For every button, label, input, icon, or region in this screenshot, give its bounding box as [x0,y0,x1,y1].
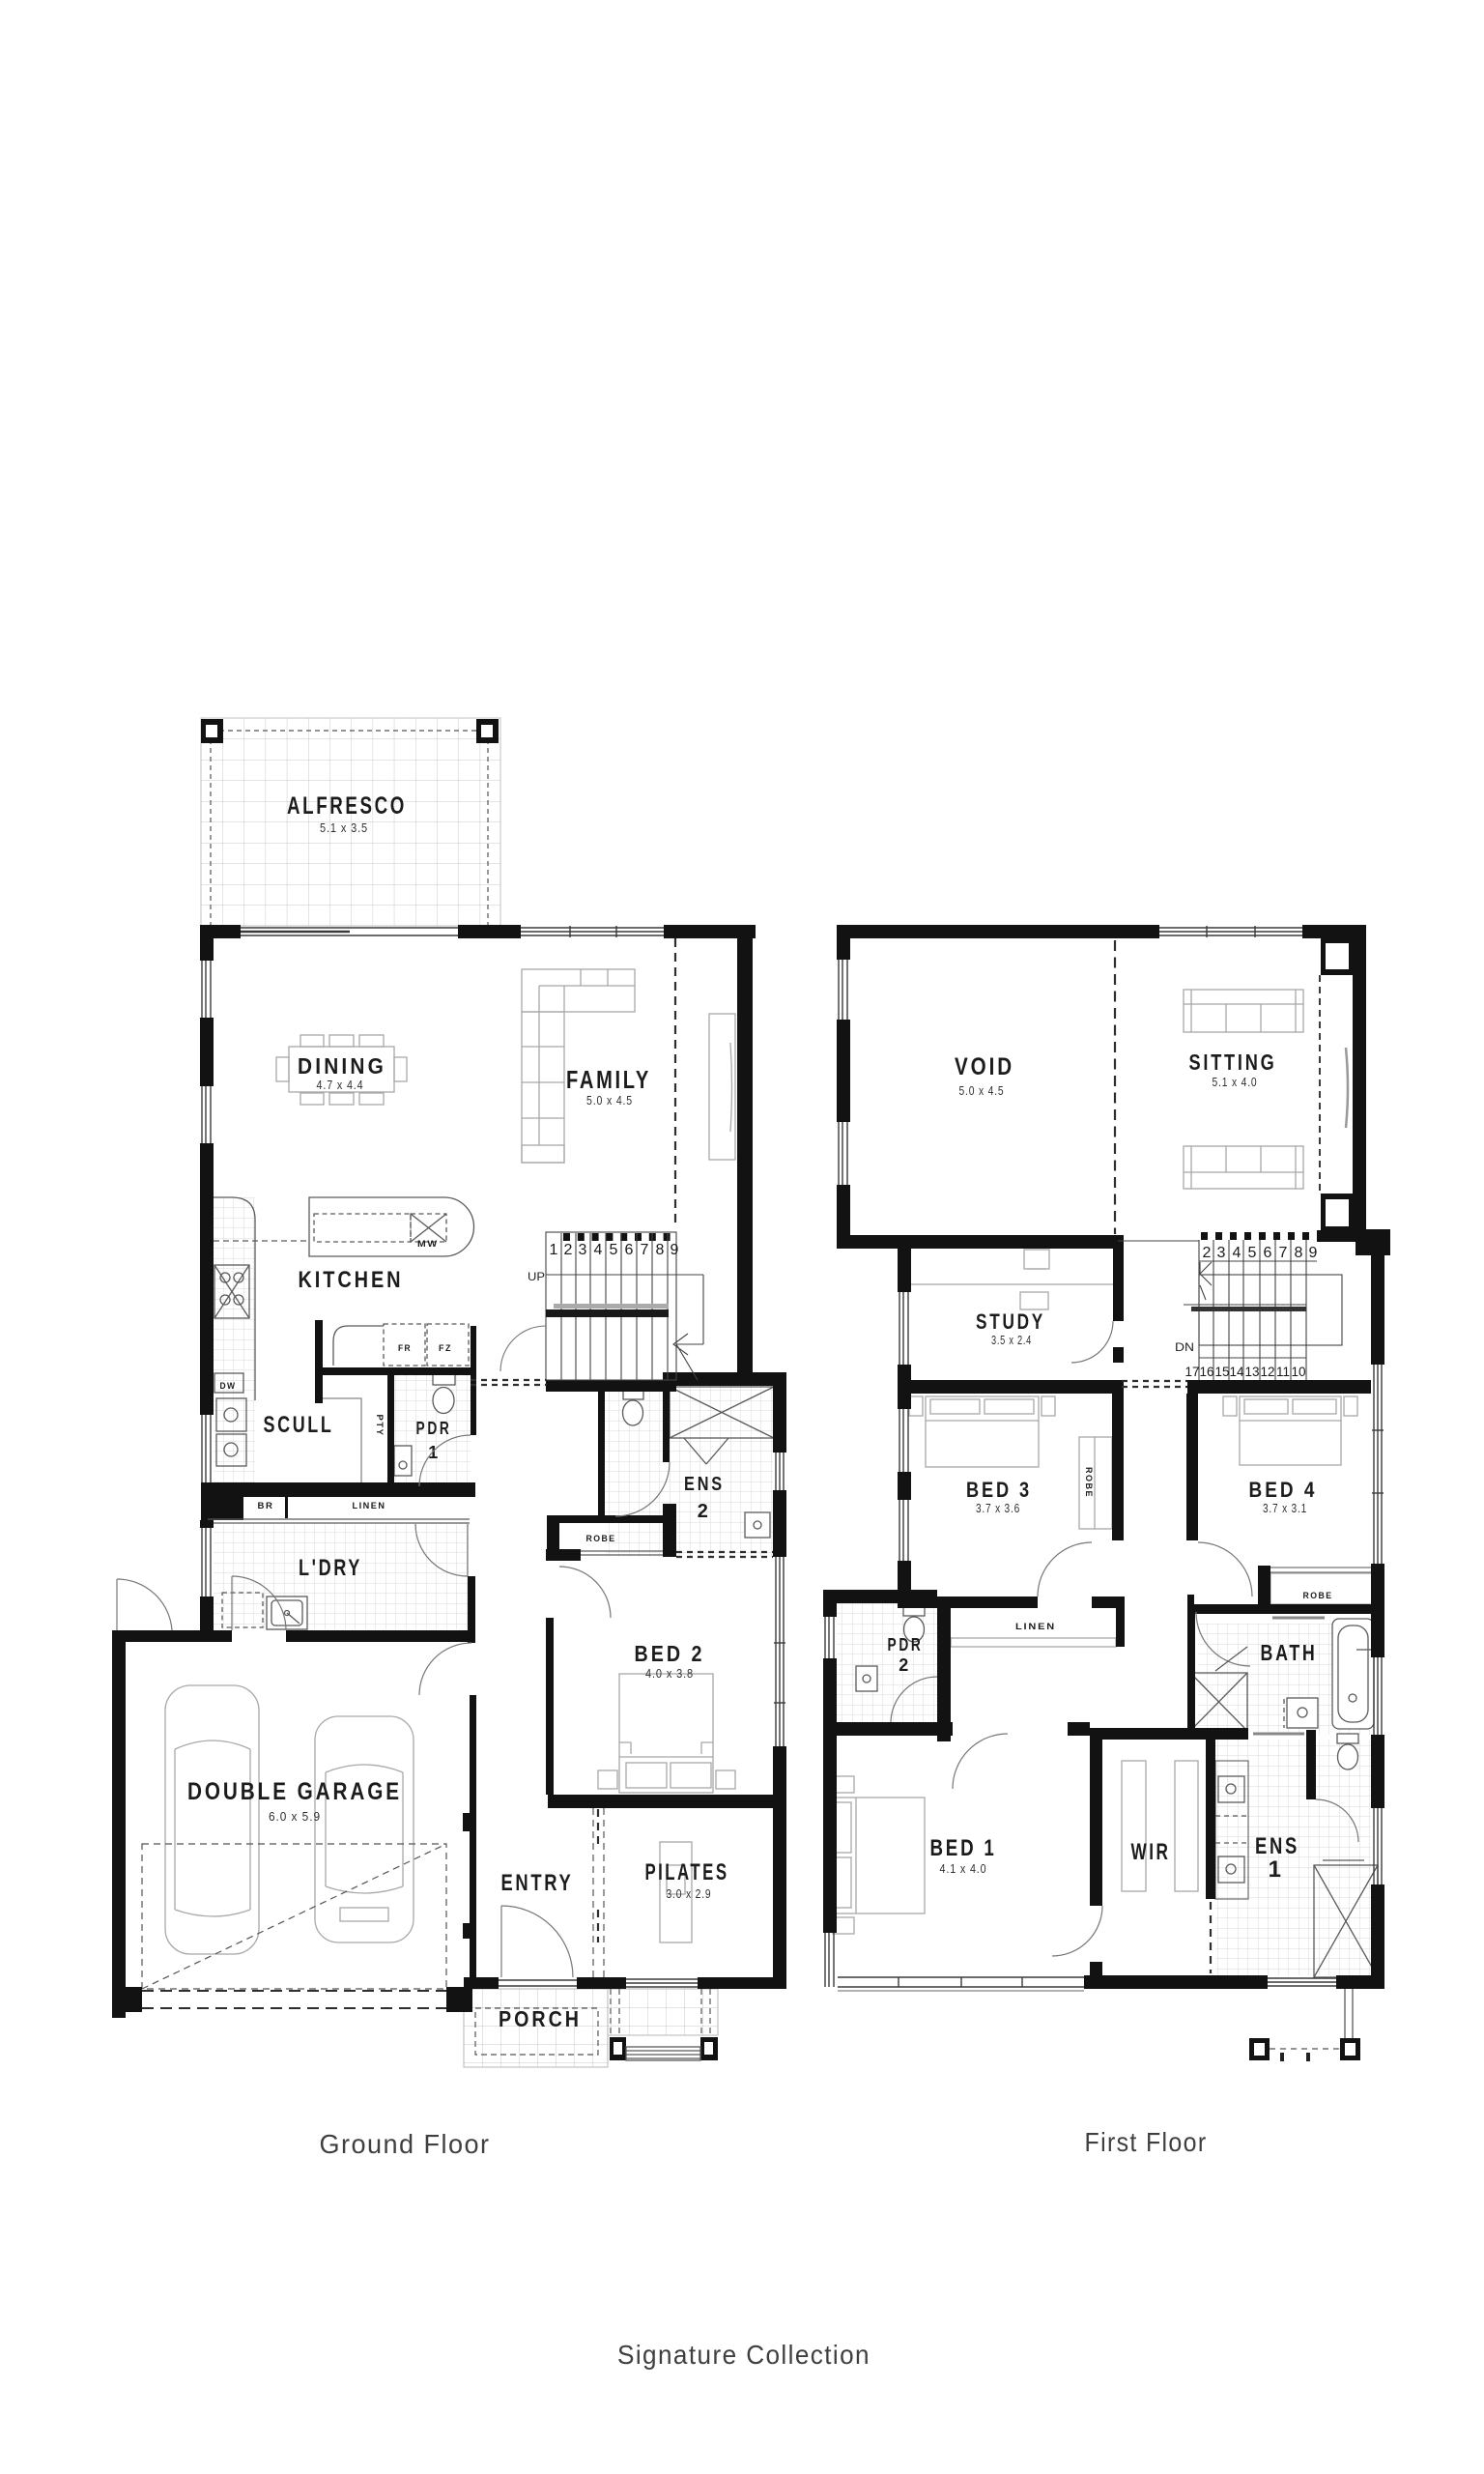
svg-text:BED 4: BED 4 [1249,1478,1318,1502]
svg-text:2: 2 [698,1501,712,1522]
svg-text:4.0 x 3.8: 4.0 x 3.8 [645,1667,694,1681]
svg-text:PILATES: PILATES [645,1859,729,1885]
svg-text:4.1 x 4.0: 4.1 x 4.0 [940,1862,987,1876]
svg-text:PORCH: PORCH [499,2006,582,2031]
svg-text:5.1 x 4.0: 5.1 x 4.0 [1213,1076,1258,1089]
svg-text:12: 12 [1260,1365,1274,1379]
svg-text:UP: UP [528,1270,545,1283]
svg-text:5: 5 [610,1242,618,1258]
svg-text:15: 15 [1214,1365,1229,1379]
svg-text:ENS: ENS [684,1474,725,1495]
svg-text:13: 13 [1244,1365,1259,1379]
svg-text:L'DRY: L'DRY [299,1555,362,1581]
svg-text:PDR: PDR [416,1419,452,1438]
svg-text:MW: MW [417,1239,439,1249]
svg-text:BATH: BATH [1261,1640,1318,1665]
svg-text:10: 10 [1291,1365,1305,1379]
svg-text:ROBE: ROBE [586,1534,616,1543]
svg-text:DN: DN [1175,1340,1194,1354]
svg-text:STUDY: STUDY [976,1309,1045,1334]
svg-text:FZ: FZ [439,1343,452,1353]
svg-text:PDR: PDR [888,1635,924,1654]
svg-text:6: 6 [625,1242,634,1258]
svg-text:5: 5 [1248,1245,1257,1261]
svg-text:WIR: WIR [1131,1839,1171,1865]
svg-text:SITTING: SITTING [1189,1050,1277,1075]
svg-text:3.5 x 2.4: 3.5 x 2.4 [991,1334,1032,1347]
svg-text:4: 4 [594,1242,603,1258]
svg-text:3.7 x 3.6: 3.7 x 3.6 [976,1502,1020,1515]
svg-text:ENS: ENS [1255,1833,1299,1859]
svg-text:5.0 x 4.5: 5.0 x 4.5 [959,1084,1005,1098]
svg-text:LINEN: LINEN [1015,1622,1056,1631]
svg-text:ROBE: ROBE [1084,1467,1094,1498]
svg-text:BED 2: BED 2 [635,1641,705,1666]
svg-text:16: 16 [1199,1365,1213,1379]
svg-text:8: 8 [1295,1245,1303,1261]
svg-text:4.7 x 4.4: 4.7 x 4.4 [317,1079,364,1092]
svg-text:First Floor: First Floor [1085,2127,1208,2157]
svg-text:LINEN: LINEN [353,1501,386,1510]
svg-text:6: 6 [1264,1245,1272,1261]
svg-text:3.0 x 2.9: 3.0 x 2.9 [667,1887,712,1901]
svg-text:PTY: PTY [375,1415,385,1437]
svg-text:ROBE: ROBE [1303,1591,1333,1600]
svg-text:8: 8 [656,1242,665,1258]
svg-text:3.7 x 3.1: 3.7 x 3.1 [1263,1502,1307,1515]
svg-text:FR: FR [398,1343,412,1353]
svg-text:BR: BR [258,1501,274,1510]
svg-text:7: 7 [1279,1245,1288,1261]
svg-text:1: 1 [1269,1856,1285,1883]
svg-text:Ground Floor: Ground Floor [320,2129,491,2159]
svg-text:DW: DW [220,1381,237,1391]
svg-text:4: 4 [1233,1245,1241,1261]
svg-text:DOUBLE GARAGE: DOUBLE GARAGE [187,1778,402,1805]
svg-text:DINING: DINING [298,1053,386,1079]
svg-text:2: 2 [899,1655,912,1675]
svg-text:9: 9 [1309,1245,1318,1261]
svg-text:BED 3: BED 3 [966,1478,1032,1502]
svg-text:FAMILY: FAMILY [566,1065,651,1094]
svg-text:2: 2 [564,1242,573,1258]
svg-text:KITCHEN: KITCHEN [299,1267,404,1293]
svg-text:VOID: VOID [955,1053,1014,1080]
svg-text:6.0 x 5.9: 6.0 x 5.9 [269,1810,321,1824]
svg-text:3: 3 [1217,1245,1226,1261]
svg-text:SCULL: SCULL [264,1412,334,1438]
svg-text:ALFRESCO: ALFRESCO [287,792,407,820]
svg-text:ENTRY: ENTRY [501,1870,574,1896]
svg-text:BED 1: BED 1 [930,1835,997,1861]
svg-text:7: 7 [641,1242,649,1258]
svg-text:17: 17 [1184,1365,1199,1379]
svg-text:9: 9 [671,1242,679,1258]
svg-text:14: 14 [1229,1365,1244,1379]
svg-text:3: 3 [579,1242,587,1258]
svg-text:11: 11 [1276,1365,1290,1379]
svg-text:1: 1 [550,1242,558,1258]
svg-text:5.0 x 4.5: 5.0 x 4.5 [586,1094,633,1108]
svg-text:5.1 x 3.5: 5.1 x 3.5 [320,821,368,835]
svg-text:Signature Collection: Signature Collection [617,2340,870,2370]
svg-text:2: 2 [1203,1245,1212,1261]
